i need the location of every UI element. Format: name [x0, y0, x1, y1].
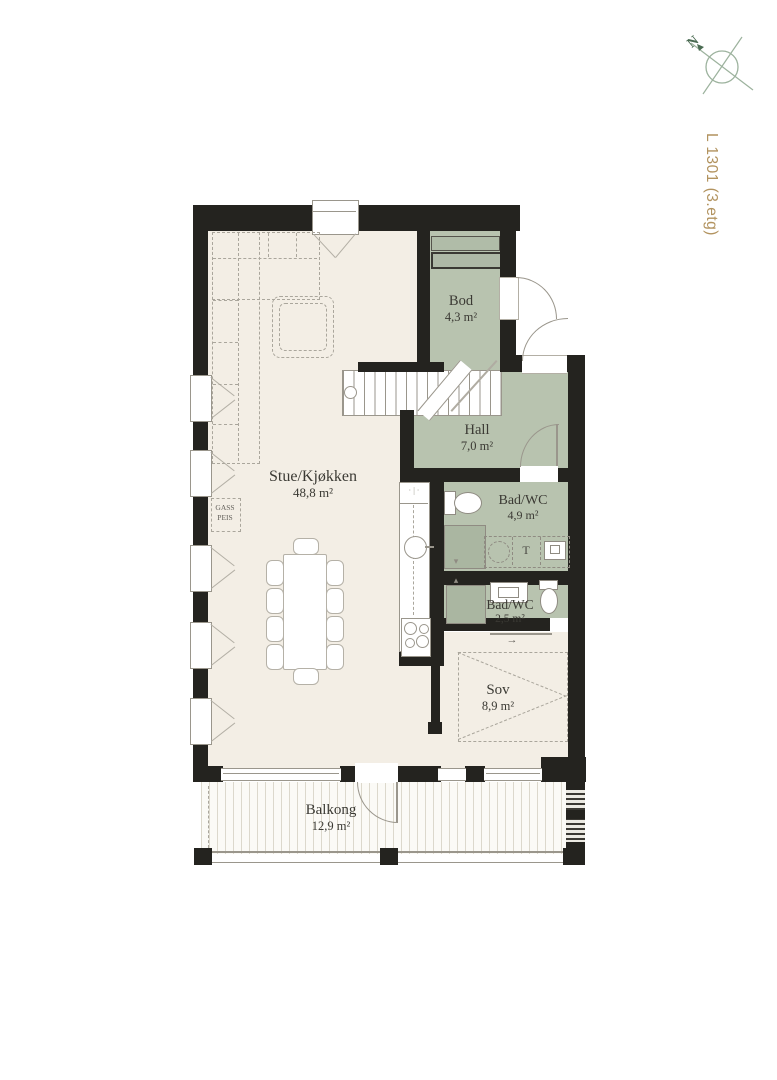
dining-chair — [326, 644, 344, 670]
bed — [458, 652, 568, 742]
window-glass-line — [223, 773, 339, 774]
stove-burner — [419, 624, 429, 634]
window-top — [312, 200, 359, 235]
balcony-post — [194, 848, 212, 865]
wall-hall-left — [400, 410, 414, 470]
door-gap-bad1 — [520, 466, 558, 482]
wall-bottom-seg3 — [397, 766, 441, 782]
balcony-dash-line — [208, 786, 209, 848]
door-arc-bod — [516, 277, 557, 319]
washer-icon — [488, 541, 510, 563]
fireplace-label-line2: PEIS — [217, 513, 232, 522]
wall-bod-left — [417, 231, 430, 372]
stove-burner — [404, 622, 417, 635]
window-left-2 — [190, 450, 212, 497]
sofa-cushion-line — [213, 424, 238, 425]
door-leaf-balcony — [396, 782, 398, 822]
toilet-bowl-icon — [454, 492, 482, 514]
dining-chair — [293, 668, 319, 685]
bath-sink-basin — [550, 545, 560, 554]
dining-chair — [266, 588, 284, 614]
door-gap-balcony — [355, 763, 398, 783]
window-sov — [484, 768, 542, 781]
shower-icon — [446, 585, 486, 624]
kitchen-sink-icon — [404, 536, 427, 559]
wall-bottom-seg1 — [193, 766, 223, 782]
bod-shelf — [431, 236, 500, 251]
balcony-post — [380, 848, 398, 865]
wall-bottom-seg4 — [465, 766, 485, 782]
sofa-vertical-arm — [212, 232, 260, 464]
window-left-4 — [190, 622, 212, 669]
wall-sov-left-stub — [431, 666, 440, 728]
dining-chair — [266, 616, 284, 642]
bod-shelf — [431, 252, 502, 269]
window-left-3 — [190, 545, 212, 592]
sofa-cushion-line — [213, 300, 238, 301]
kitchen-cabinet-marks: · | · — [400, 486, 428, 495]
wall-sov-left-cap — [428, 722, 442, 734]
sofa-cushion-line — [268, 233, 269, 257]
door-leaf-bad1 — [556, 424, 558, 466]
dining-chair — [326, 616, 344, 642]
dryer-label: T — [512, 543, 540, 558]
toilet-bowl-icon — [540, 588, 558, 614]
unit-label: L 1301 (3.etg) — [702, 133, 720, 236]
window-balcony-1 — [221, 768, 341, 781]
wall-stair-beam — [358, 362, 444, 372]
screen-cap — [566, 842, 585, 851]
fireplace-label: GASS PEIS — [211, 503, 239, 523]
door-arc-entry — [522, 318, 568, 361]
dining-chair — [266, 560, 284, 586]
dining-table — [283, 554, 327, 670]
sofa-seat-line — [238, 233, 239, 461]
fireplace-label-line1: GASS — [215, 503, 234, 512]
window-balcony-2 — [438, 768, 466, 781]
bath-sink-basin — [498, 587, 519, 598]
dining-chair — [293, 538, 319, 555]
wall-bottom-right-corner — [541, 757, 586, 782]
sofa-cushion-line — [213, 384, 238, 385]
kitchen-sink-tap — [425, 546, 434, 548]
kitchen-counter-centerline — [413, 505, 414, 615]
screen-cap — [566, 810, 585, 819]
compass-icon: N — [685, 30, 759, 104]
wall-right — [568, 355, 585, 767]
floor-plan-page: → · | · T ▾ ▴ GAS — [0, 0, 777, 1080]
sliding-door-arrow: → — [502, 634, 522, 646]
window-glass-line — [313, 211, 356, 212]
window-left-5 — [190, 698, 212, 745]
window-glass-line — [486, 773, 540, 774]
stairs-newel — [344, 386, 357, 399]
room-hall-upper — [500, 370, 568, 412]
appliance-divider — [540, 537, 541, 565]
wall-entry-left — [500, 355, 522, 372]
door-gap-sliding — [550, 618, 568, 631]
coffee-table-inner — [279, 303, 327, 351]
dining-chair — [266, 644, 284, 670]
vent-symbol: ▾ — [450, 556, 462, 567]
wall-bod-right-upper — [500, 231, 516, 277]
dining-chair — [326, 588, 344, 614]
window-left-1 — [190, 375, 212, 422]
stove-burner — [405, 638, 415, 648]
stove-burner — [416, 635, 429, 648]
sofa-cushion-line — [296, 233, 297, 257]
dining-chair — [326, 560, 344, 586]
screen-cap — [566, 782, 585, 790]
sofa-cushion-line — [213, 342, 238, 343]
